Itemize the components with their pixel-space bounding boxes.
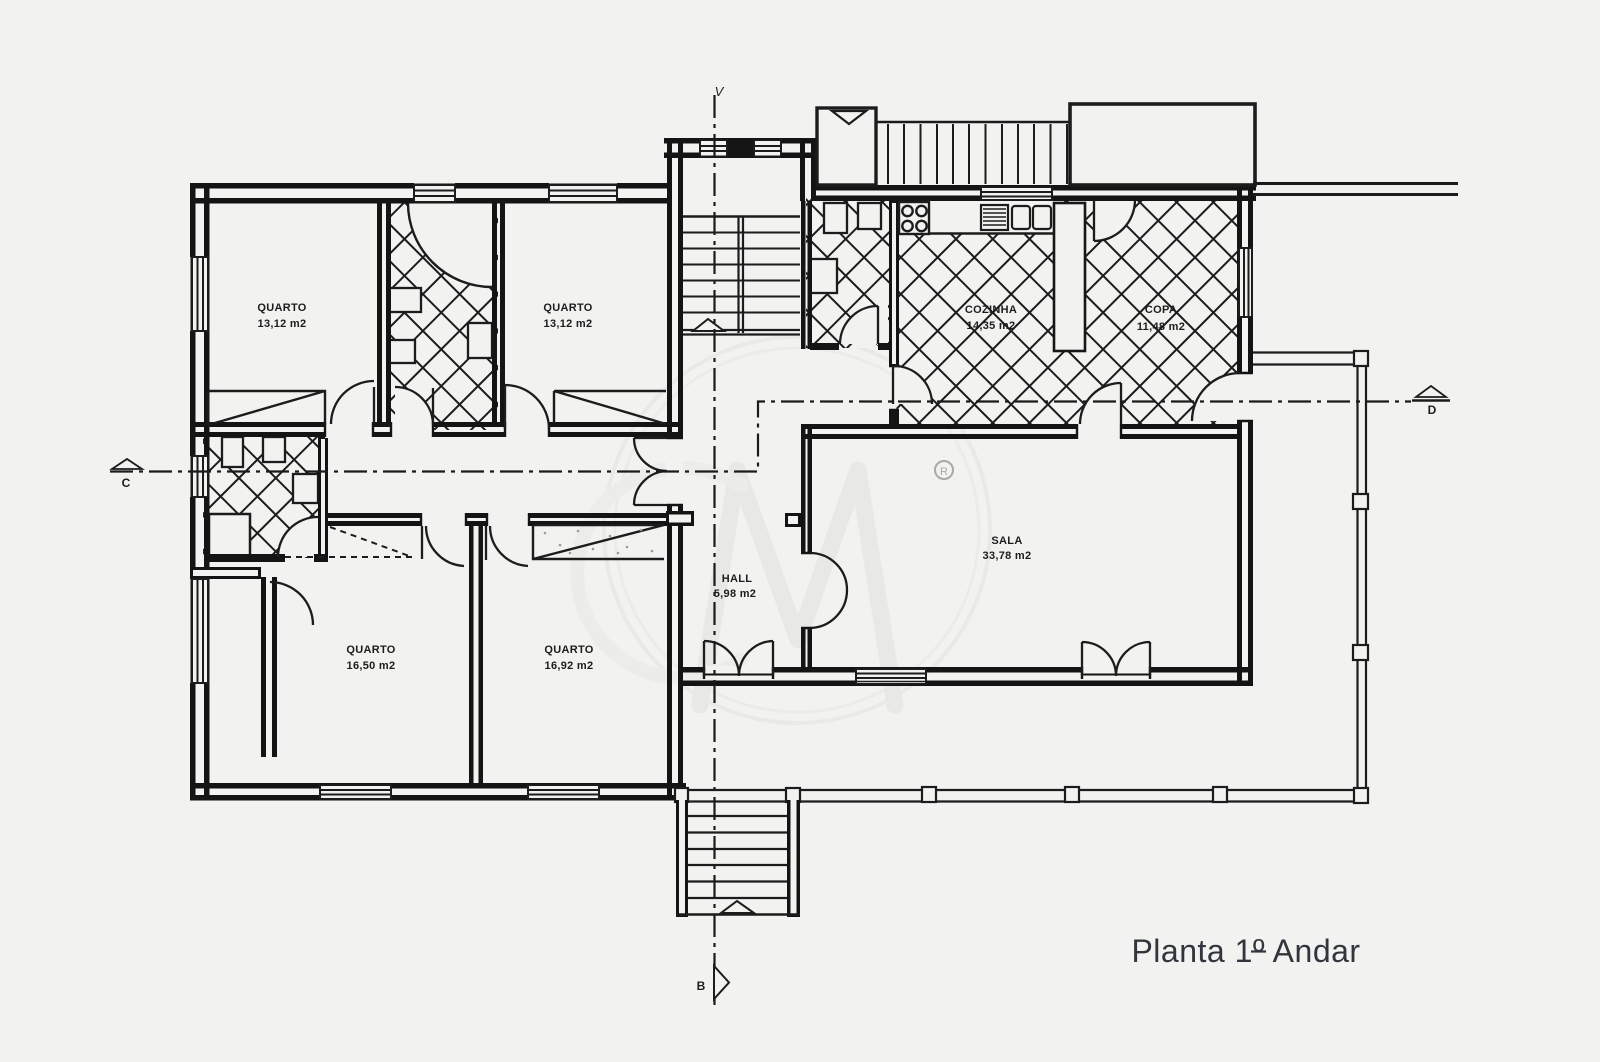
svg-text:V: V (715, 84, 725, 99)
svg-text:16,92 m2: 16,92 m2 (545, 660, 594, 672)
svg-text:SALA: SALA (991, 535, 1022, 547)
svg-text:QUARTO: QUARTO (543, 302, 592, 314)
svg-text:C: C (122, 476, 131, 490)
svg-text:B: B (697, 979, 706, 993)
svg-text:QUARTO: QUARTO (544, 644, 593, 656)
svg-text:D: D (1428, 403, 1437, 417)
svg-text:14,35 m2: 14,35 m2 (967, 320, 1016, 332)
svg-text:QUARTO: QUARTO (257, 302, 306, 314)
svg-text:5,98 m2: 5,98 m2 (714, 588, 756, 600)
svg-text:Planta 1º Andar: Planta 1º Andar (1131, 933, 1360, 969)
svg-text:13,12 m2: 13,12 m2 (258, 318, 307, 330)
svg-text:COPA: COPA (1145, 304, 1177, 316)
svg-text:QUARTO: QUARTO (346, 644, 395, 656)
svg-text:HALL: HALL (722, 573, 753, 585)
svg-text:R: R (940, 466, 948, 478)
svg-text:33,78 m2: 33,78 m2 (983, 550, 1032, 562)
svg-text:COZINHA: COZINHA (965, 304, 1017, 316)
svg-text:11,48 m2: 11,48 m2 (1137, 321, 1185, 333)
svg-text:13,12 m2: 13,12 m2 (544, 318, 593, 330)
svg-text:16,50 m2: 16,50 m2 (347, 660, 396, 672)
